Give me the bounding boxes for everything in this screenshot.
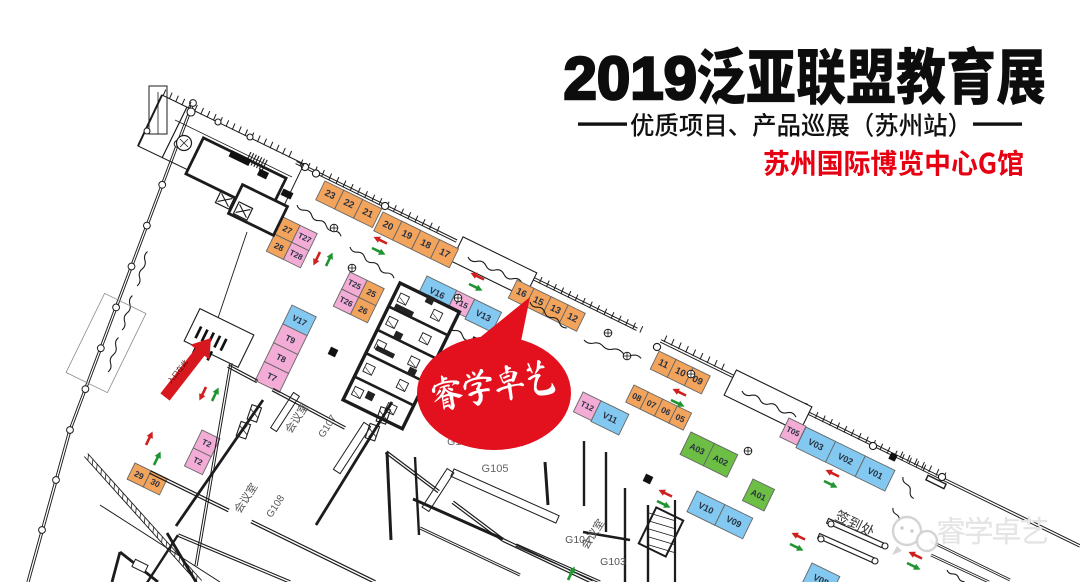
svg-text:2019: 2019 [564, 45, 697, 112]
svg-text:G104: G104 [565, 534, 591, 546]
svg-text:G103: G103 [600, 556, 626, 568]
svg-text:G105: G105 [482, 463, 509, 475]
